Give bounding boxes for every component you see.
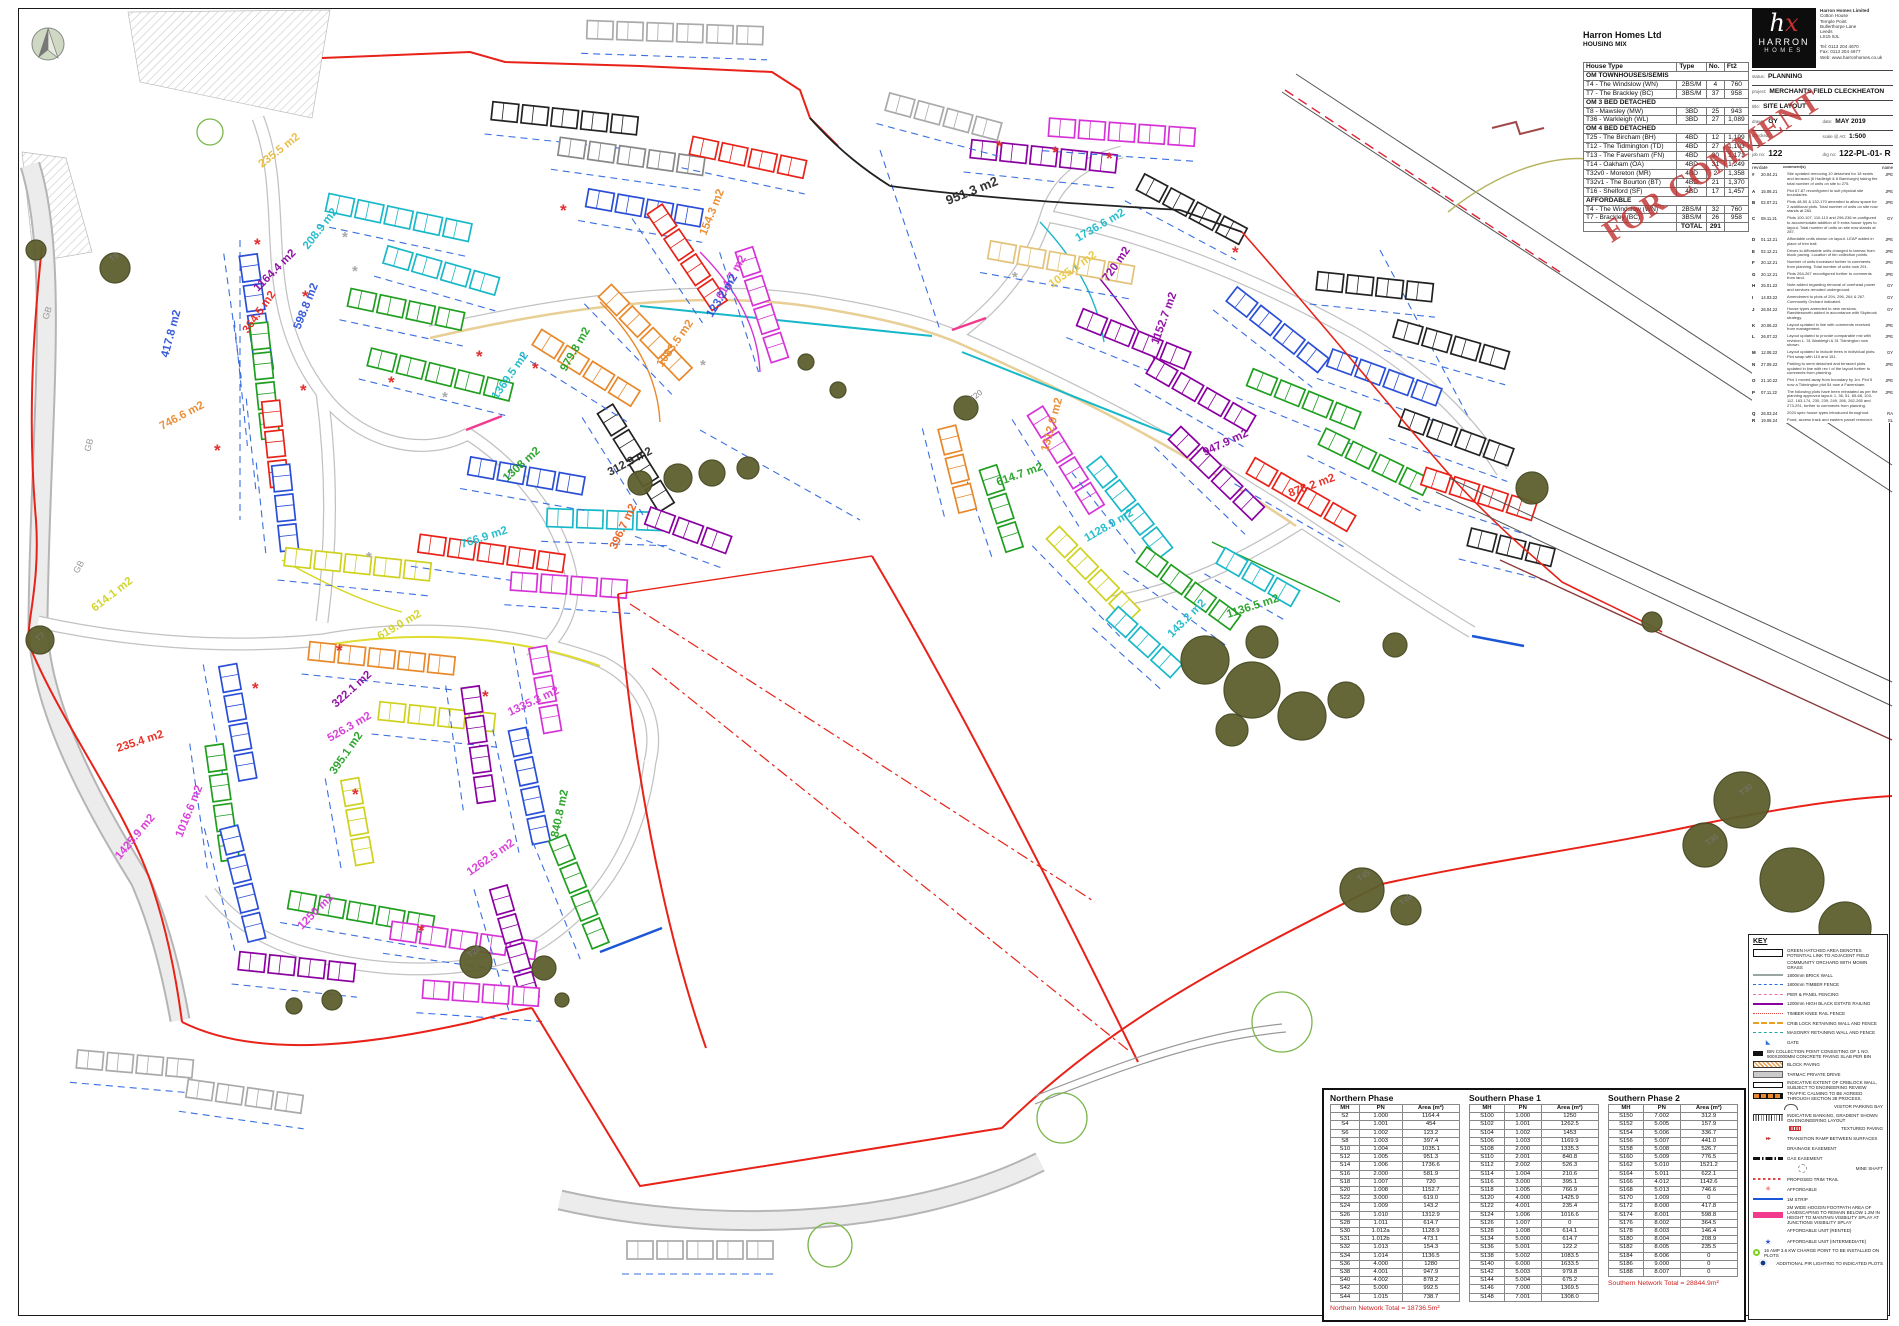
house-group <box>1168 126 1195 146</box>
phase-table-header-row: MHPNArea (m²) <box>1609 1105 1738 1113</box>
cell: 8.006 <box>1643 1252 1680 1260</box>
cell: 5.003 <box>1504 1269 1541 1277</box>
tree <box>1224 662 1280 718</box>
plot-boundary <box>246 399 256 494</box>
cell: 454 <box>1402 1121 1459 1129</box>
legend-label: PIER & PANEL FENCING <box>1787 992 1839 997</box>
revision-name: JPE <box>1881 362 1893 376</box>
boundary-line <box>630 604 1095 902</box>
revision-comment: House types amended to new versions. Ram… <box>1787 307 1879 321</box>
gb-label: GB <box>71 559 86 575</box>
cell: 1.009 <box>1359 1203 1402 1211</box>
cell: S42 <box>1331 1285 1360 1293</box>
cell: 958 <box>1724 89 1748 98</box>
house <box>1250 305 1282 335</box>
housing-mix-subtitle: HOUSING MIX <box>1583 41 1749 48</box>
phase-table-column: Southern Phase 2MHPNArea (m²)S1507.00231… <box>1608 1093 1738 1317</box>
house-group <box>298 958 326 979</box>
revision-row: N27.09.22Parking to semi detached and te… <box>1752 362 1893 376</box>
area-label: 614.1 m2 <box>89 575 135 614</box>
cell: 146.4 <box>1680 1228 1737 1236</box>
house <box>398 651 426 672</box>
cell: 7.000 <box>1504 1285 1541 1293</box>
revision-name: JPE <box>1881 172 1893 186</box>
phase-column: PN <box>1643 1105 1680 1113</box>
trimtrail-icon <box>1753 1178 1783 1181</box>
house <box>209 774 230 802</box>
revision-row: M12.08.22Layout updated to include trees… <box>1752 350 1893 359</box>
phase-row: S1565.007441.0 <box>1609 1137 1738 1145</box>
revision-row: F20.12.21Number of units increased furth… <box>1752 260 1893 269</box>
phase-row: S1507.002312.9 <box>1609 1113 1738 1121</box>
phase-row: S81.003397.4 <box>1331 1137 1460 1145</box>
cell: 1.005 <box>1504 1187 1541 1195</box>
house-group <box>1242 563 1274 592</box>
house <box>408 705 436 726</box>
cell: 25 <box>1706 107 1724 116</box>
house-group <box>1198 388 1230 417</box>
cell: 2.000 <box>1504 1146 1541 1154</box>
phase-row: S1664.0121142.6 <box>1609 1178 1738 1186</box>
revision-comment: Plots 100-107, 110-113 and 296-236 re-co… <box>1787 216 1879 234</box>
house <box>1427 419 1458 445</box>
house-group <box>945 454 969 484</box>
house-group <box>238 952 266 973</box>
cell: 1.003 <box>1504 1137 1541 1145</box>
affordable-marker: * <box>996 137 1003 156</box>
house <box>717 1241 743 1259</box>
phase-table-head: MHPNArea (m²) <box>1331 1105 1460 1113</box>
afford-icon <box>1753 1185 1783 1194</box>
field-value: 1:500 <box>1849 133 1866 140</box>
cell: S104 <box>1470 1129 1505 1137</box>
house-group <box>529 646 551 675</box>
house-group <box>914 101 944 125</box>
cell: 8.000 <box>1643 1203 1680 1211</box>
traffic-icon <box>1753 1093 1783 1099</box>
house-group <box>581 111 609 132</box>
phase-row: S1487.0011308.0 <box>1470 1293 1599 1301</box>
housing-mix-row: OM 3 BED DETACHED <box>1584 98 1749 107</box>
logo-name: HARRON <box>1752 38 1816 47</box>
house-group <box>368 648 396 669</box>
cell: 1369.5 <box>1541 1285 1598 1293</box>
house-group <box>748 149 777 172</box>
cell: 3.000 <box>1359 1195 1402 1203</box>
cell: 1083.5 <box>1541 1252 1598 1260</box>
house <box>1346 275 1374 296</box>
cell: S4 <box>1331 1121 1360 1129</box>
cell: T12 - The Tidmington (TD) <box>1584 143 1677 152</box>
phase-row: S1768.002364.5 <box>1609 1219 1738 1227</box>
cell: 2BS/M <box>1677 80 1707 89</box>
revision-date: 20.04.21 <box>1761 172 1785 186</box>
house <box>406 301 435 324</box>
revision-list: #20.04.21Site updated removing 10 detach… <box>1752 172 1893 423</box>
house <box>272 464 293 492</box>
house <box>1168 126 1195 146</box>
cell: 1016.6 <box>1541 1211 1598 1219</box>
house-group <box>383 246 413 270</box>
house <box>1198 388 1230 417</box>
house-group <box>507 547 535 568</box>
house <box>627 1241 653 1259</box>
house-group <box>1163 188 1194 216</box>
cell: 1521.2 <box>1680 1162 1737 1170</box>
cell: 1.007 <box>1504 1219 1541 1227</box>
house-group <box>1105 480 1135 512</box>
house-group <box>1393 320 1423 344</box>
area-label: 417.8 m2 <box>159 309 183 359</box>
cell: 5.006 <box>1643 1129 1680 1137</box>
revision-date: 02.12.21 <box>1761 249 1785 258</box>
cell: 1250 <box>1541 1113 1598 1121</box>
revision-date: 12.08.22 <box>1761 350 1785 359</box>
housing-mix-company: Harron Homes Ltd <box>1583 30 1749 40</box>
house-group <box>227 854 251 884</box>
legend-item: 16 AMP 3.6 KW CHARGE POINT TO BE INSTALL… <box>1753 1248 1883 1258</box>
tree <box>1246 626 1278 658</box>
pierpanel-icon <box>1753 994 1783 995</box>
phase-table-title: Northern Phase <box>1330 1093 1460 1103</box>
cell: S162 <box>1609 1162 1644 1170</box>
cell: 5.001 <box>1504 1244 1541 1252</box>
house-group <box>441 262 471 286</box>
house-group <box>470 745 491 773</box>
house-group <box>1346 275 1374 296</box>
housing-mix-column: House Type <box>1584 63 1677 72</box>
cell: 4BD <box>1677 134 1707 143</box>
house-group <box>674 205 703 227</box>
house <box>687 1241 713 1259</box>
mineshaft-icon <box>1798 1164 1807 1173</box>
house <box>510 572 537 592</box>
house-group <box>422 980 449 1000</box>
house <box>598 284 629 315</box>
house-group <box>1427 419 1458 445</box>
revision-row: R19.06.24Pond, access track and eastern … <box>1752 418 1893 423</box>
marker: * <box>352 263 358 280</box>
field-label: drg no: <box>1823 152 1837 157</box>
cell: S120 <box>1470 1195 1505 1203</box>
phase-row: S341.0141136.5 <box>1331 1252 1460 1260</box>
revision-column: date <box>1759 165 1783 170</box>
house-group <box>374 557 402 578</box>
house-group <box>938 425 962 455</box>
house-group <box>239 254 260 282</box>
house-group <box>413 212 442 235</box>
section-cell: OM TOWNHOUSES/SEMIS <box>1584 71 1749 80</box>
revision-comment: Amendment to plots of 294, 296, 264 & 26… <box>1787 295 1879 304</box>
revision-row: L26.07.22Layout updated to provide compa… <box>1752 334 1893 348</box>
cell: 122.2 <box>1541 1244 1598 1252</box>
blank-icon <box>1753 960 1783 969</box>
house <box>1163 188 1194 216</box>
north-arrow-icon <box>32 28 64 60</box>
phase-row: S1406.0001633.5 <box>1470 1260 1599 1268</box>
house <box>1406 281 1434 302</box>
boundary-line <box>872 556 1138 1062</box>
house-group <box>272 464 293 492</box>
plot-boundary <box>70 1082 196 1093</box>
legend-item: TRAFFIC CALMING TO BE AGREED THROUGH SEC… <box>1753 1091 1883 1101</box>
house-group <box>1067 548 1098 579</box>
cell: 5.007 <box>1643 1137 1680 1145</box>
cell: 979.8 <box>1541 1269 1598 1277</box>
cell: 1.012b <box>1359 1236 1402 1244</box>
cell: S126 <box>1470 1219 1505 1227</box>
house <box>1059 457 1088 489</box>
house <box>1078 120 1105 140</box>
house-group <box>627 1241 653 1259</box>
phase-row: S1001.0001250 <box>1470 1113 1599 1121</box>
house <box>229 723 251 752</box>
affordable-marker: * <box>418 921 425 940</box>
house <box>677 24 704 43</box>
phase-row: S1204.0001425.9 <box>1470 1195 1599 1203</box>
drainage-schedule-panel: Northern PhaseMHPNArea (m²)S21.0001164.4… <box>1322 1088 1746 1322</box>
revision-letter: Q <box>1752 411 1759 416</box>
title-block: hx HARRON HOMES Harron Homes Limited Cot… <box>1752 8 1893 423</box>
cell: S140 <box>1470 1260 1505 1268</box>
affordable-marker: * <box>352 785 359 804</box>
house <box>701 528 732 554</box>
cell: 1.006 <box>1504 1211 1541 1219</box>
house <box>515 757 538 786</box>
legend-item: VISITOR PARKING BAY <box>1753 1103 1883 1111</box>
cell: S148 <box>1470 1293 1505 1301</box>
legend-item: GAS EASEMENT <box>1753 1155 1883 1163</box>
tree-tag: T20 <box>968 388 985 404</box>
cell: 760 <box>1724 205 1748 214</box>
revision-letter: D <box>1752 237 1759 246</box>
cell: S24 <box>1331 1203 1360 1211</box>
house-group <box>1216 216 1247 244</box>
masonry-icon <box>1753 1032 1783 1033</box>
house-group <box>1480 345 1510 369</box>
existing-woodland-hatch <box>128 10 330 118</box>
field-value: MAY 2019 <box>1835 118 1865 125</box>
revision-letter: E <box>1752 249 1759 258</box>
phase-row: S1385.0021083.5 <box>1470 1252 1599 1260</box>
revision-date: 07.11.22 <box>1761 390 1785 408</box>
phase-column: MH <box>1470 1105 1505 1113</box>
tree <box>1714 772 1770 828</box>
cell: 622.1 <box>1680 1170 1737 1178</box>
house <box>308 642 336 663</box>
house-group <box>216 1083 244 1104</box>
cell: 619.0 <box>1402 1195 1459 1203</box>
legend-label: MASONRY RETAINING WALL AND FENCE <box>1787 1030 1875 1035</box>
house-group <box>617 22 644 41</box>
phase-row: S223.000619.0 <box>1331 1195 1460 1203</box>
cell: 441.0 <box>1680 1137 1737 1145</box>
house-group <box>455 370 485 394</box>
legend-label: COMMUNITY ORCHARD WITH MOWN GRASS <box>1787 960 1883 970</box>
cell: 1.004 <box>1359 1146 1402 1154</box>
cell: 675.2 <box>1541 1277 1598 1285</box>
cell: 526.3 <box>1541 1162 1598 1170</box>
plot-boundary <box>234 321 247 446</box>
house-group <box>551 108 579 129</box>
cell: 614.1 <box>1541 1228 1598 1236</box>
cell: S152 <box>1609 1121 1644 1129</box>
cell: 1136.5 <box>1402 1252 1459 1260</box>
house-group <box>657 1241 683 1259</box>
cell: 5.002 <box>1504 1252 1541 1260</box>
phase-row: S1224.001235.4 <box>1470 1203 1599 1211</box>
affordable-marker: * <box>482 687 489 706</box>
legend-item: PROPOSED TRIM TRAIL <box>1753 1175 1883 1183</box>
phase-row: S404.002878.2 <box>1331 1277 1460 1285</box>
revision-date: 08.11.21 <box>1761 216 1785 234</box>
phase-table: MHPNArea (m²)S21.0001164.4S41.001454S61.… <box>1330 1104 1460 1302</box>
cell: 37 <box>1706 89 1724 98</box>
area-label: 1016.6 m2 <box>174 784 206 839</box>
cell: S106 <box>1470 1137 1505 1145</box>
house <box>413 212 442 235</box>
legend-label: TRANSITION RAMP BETWEEN SURFACES <box>1787 1136 1877 1141</box>
phase-row: S1445.004675.2 <box>1470 1277 1599 1285</box>
boundary-line <box>322 52 838 146</box>
cell: 312.9 <box>1680 1113 1737 1121</box>
contact-line: Web: www.harronhomes.co.uk <box>1820 55 1882 60</box>
phase-row: S1141.004210.6 <box>1470 1170 1599 1178</box>
cell: 720 <box>1402 1178 1459 1186</box>
house <box>1324 503 1356 532</box>
revision-row: C08.11.21Plots 100-107, 110-113 and 296-… <box>1752 216 1893 234</box>
area-label: 1262.5 m2 <box>465 837 517 878</box>
legend-item: BLOCK PAVING <box>1753 1061 1883 1069</box>
house-group <box>615 194 644 216</box>
house-group <box>425 363 455 387</box>
house-group <box>346 807 368 836</box>
house-group <box>1108 122 1135 142</box>
revision-row: H25.01.22Note added regarding removal of… <box>1752 283 1893 292</box>
cell: 1169.9 <box>1541 1137 1598 1145</box>
field: date:MAY 2019 <box>1823 118 1894 125</box>
phase-row: S261.0101312.9 <box>1331 1211 1460 1219</box>
house-group <box>482 984 509 1004</box>
cell: 526.7 <box>1680 1146 1737 1154</box>
revision-date: 15.06.21 <box>1761 189 1785 198</box>
house-group <box>245 1088 273 1109</box>
revision-column: comment(s) <box>1783 165 1881 170</box>
phase-row: S1728.000417.8 <box>1609 1203 1738 1211</box>
cell: 1.000 <box>1504 1113 1541 1121</box>
tree <box>830 382 846 398</box>
cell: S168 <box>1609 1187 1644 1195</box>
house-group <box>577 510 604 529</box>
revision-name: GY <box>1881 216 1893 234</box>
cell: S160 <box>1609 1154 1644 1162</box>
cell: 1.002 <box>1359 1129 1402 1137</box>
house <box>491 102 519 123</box>
cell: S32 <box>1331 1244 1360 1252</box>
boundary-line <box>1035 1024 1282 1096</box>
cell: 1035.1 <box>1402 1146 1459 1154</box>
house-group <box>265 430 286 458</box>
phase-row: S1122.002526.3 <box>1470 1162 1599 1170</box>
housing-mix-column: No. <box>1706 63 1724 72</box>
revision-date: 01.12.21 <box>1761 237 1785 246</box>
house <box>617 22 644 41</box>
house <box>166 1058 193 1078</box>
field-label: date: <box>1823 119 1833 124</box>
house-group <box>1316 272 1344 293</box>
phase-column: MH <box>1609 1105 1644 1113</box>
phase-table-title: Southern Phase 1 <box>1469 1093 1599 1103</box>
affordable-marker: * <box>476 347 483 366</box>
cell: S164 <box>1609 1170 1644 1178</box>
house-group <box>664 229 693 261</box>
company-address: Harron Homes Limited Cotton HouseTemple … <box>1820 8 1882 68</box>
house-group <box>1330 403 1361 429</box>
house-group <box>717 1241 743 1259</box>
revision-name: GY <box>1881 307 1893 321</box>
house-group <box>1345 441 1376 469</box>
cell: S166 <box>1609 1178 1644 1186</box>
phase-row: S1102.001840.8 <box>1470 1154 1599 1162</box>
area-label: 1136.5 m2 <box>1225 593 1280 621</box>
revision-letter: H <box>1752 283 1759 292</box>
phase-column: PN <box>1359 1105 1402 1113</box>
house <box>537 551 565 572</box>
revision-row: #20.04.21Site updated removing 10 detach… <box>1752 172 1893 186</box>
revision-date: 14.03.22 <box>1761 295 1785 304</box>
boundary-line <box>1492 122 1544 134</box>
revision-comment: Affordable units shown on layout. LEAP a… <box>1787 237 1879 246</box>
affordable-marker: * <box>1232 243 1239 262</box>
house-group <box>570 576 597 596</box>
house <box>556 473 585 495</box>
address-lines: Cotton HouseTemple PointBullerthorpe Lan… <box>1820 13 1882 39</box>
house-group <box>308 642 336 663</box>
plot-boundary <box>325 778 342 873</box>
cell: S108 <box>1470 1146 1505 1154</box>
cell: 1.008 <box>1504 1228 1541 1236</box>
cell: S174 <box>1609 1211 1644 1219</box>
house <box>427 654 455 675</box>
house <box>615 194 644 216</box>
cell: 1.012a <box>1359 1228 1402 1236</box>
legend-item: 1200mm HIGH BLACK ESTATE RAILING <box>1753 1000 1883 1008</box>
criblockfence-icon <box>1753 1022 1783 1024</box>
phase-row: S1828.005235.5 <box>1609 1244 1738 1252</box>
tree <box>664 464 692 492</box>
house-group <box>418 534 446 555</box>
housing-mix-header: House TypeTypeNo.Ft2 <box>1584 63 1749 72</box>
house <box>1172 373 1204 402</box>
house-group <box>527 815 550 844</box>
house-group <box>1247 369 1278 395</box>
revision-letter: M <box>1752 350 1759 359</box>
revision-row: O21.10.22Plot 1 moved away from boundary… <box>1752 378 1893 387</box>
house-group <box>598 284 629 315</box>
house-group <box>953 483 977 513</box>
legend-item: TEXTURED PAVING <box>1753 1124 1883 1132</box>
house <box>275 1092 303 1113</box>
house-group <box>491 102 519 123</box>
house-group <box>597 404 626 436</box>
house-group <box>737 26 764 45</box>
cell: S26 <box>1331 1211 1360 1219</box>
phase-table: MHPNArea (m²)S1507.002312.9S1525.005157.… <box>1608 1104 1738 1277</box>
phase-row: S1261.0070 <box>1470 1219 1599 1227</box>
revision-header: revdatecomment(s)name <box>1752 163 1893 170</box>
house-group <box>1376 278 1404 299</box>
cell: 336.7 <box>1680 1129 1737 1137</box>
